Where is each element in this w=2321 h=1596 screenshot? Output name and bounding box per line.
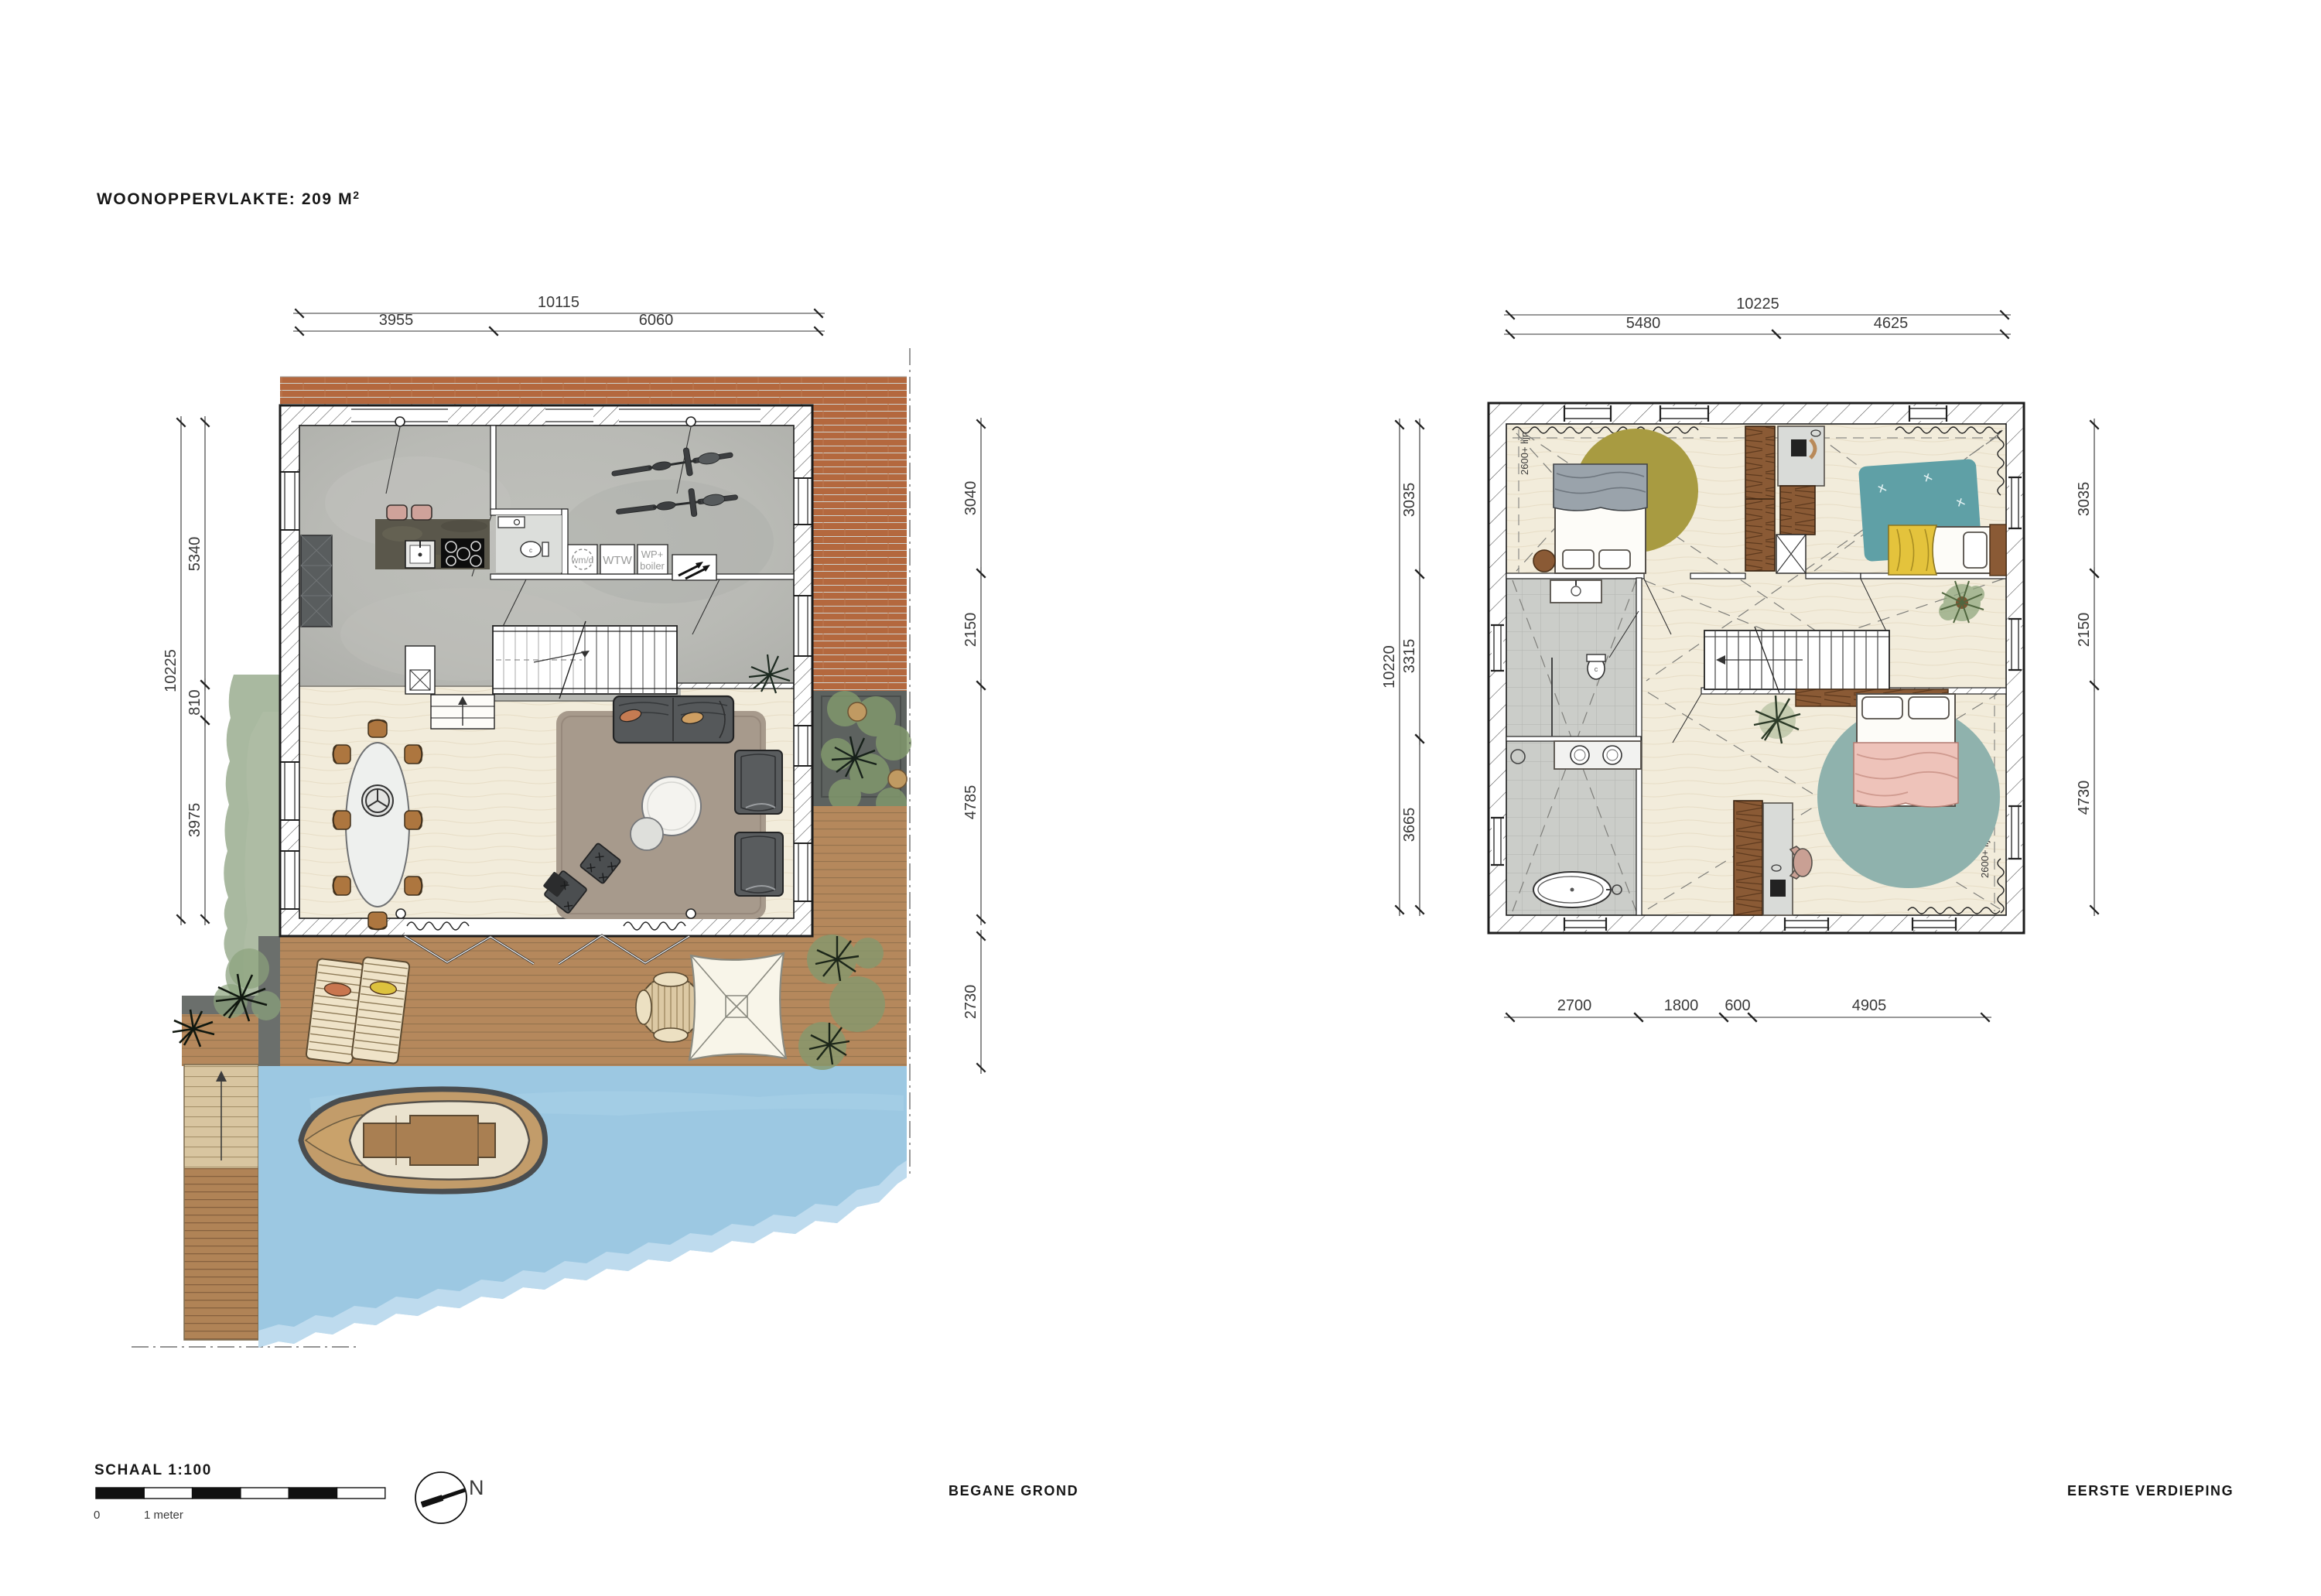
svg-text:3040: 3040 — [962, 481, 979, 516]
svg-text:2700: 2700 — [1557, 997, 1592, 1014]
svg-text:4905: 4905 — [1852, 997, 1887, 1014]
svg-text:WTW: WTW — [603, 554, 632, 567]
svg-text:5480: 5480 — [1626, 315, 1661, 332]
svg-text:4785: 4785 — [962, 785, 979, 820]
svg-text:4625: 4625 — [1874, 315, 1909, 332]
svg-text:6060: 6060 — [639, 312, 674, 329]
svg-text:10115: 10115 — [538, 294, 579, 311]
svg-text:3315: 3315 — [1401, 639, 1418, 674]
svg-text:10225: 10225 — [1736, 296, 1779, 313]
svg-text:SCHAAL 1:100: SCHAAL 1:100 — [94, 1462, 212, 1478]
svg-text:2730: 2730 — [962, 985, 979, 1020]
svg-text:2150: 2150 — [962, 613, 979, 648]
svg-text:N: N — [469, 1476, 484, 1499]
svg-text:0: 0 — [94, 1509, 100, 1522]
svg-text:10225: 10225 — [162, 649, 179, 692]
svg-text:WP+: WP+ — [641, 549, 664, 560]
svg-text:3035: 3035 — [2076, 482, 2093, 517]
svg-text:10220: 10220 — [1381, 645, 1398, 689]
svg-text:1 meter: 1 meter — [144, 1509, 183, 1522]
svg-text:WOONOPPERVLAKTE: 209 M2: WOONOPPERVLAKTE: 209 M2 — [97, 189, 361, 208]
svg-text:3035: 3035 — [1401, 483, 1418, 518]
svg-text:810: 810 — [186, 689, 203, 715]
svg-text:3665: 3665 — [1401, 808, 1418, 842]
svg-text:c: c — [529, 547, 532, 554]
svg-text:600: 600 — [1725, 997, 1750, 1014]
svg-text:3975: 3975 — [186, 803, 203, 838]
svg-text:1800: 1800 — [1664, 997, 1699, 1014]
svg-text:5340: 5340 — [186, 537, 203, 572]
svg-text:4730: 4730 — [2076, 781, 2093, 815]
svg-text:boiler: boiler — [640, 560, 665, 572]
svg-text:2150: 2150 — [2076, 613, 2093, 648]
svg-text:wm/d: wm/d — [571, 555, 594, 566]
svg-text:BEGANE GROND: BEGANE GROND — [949, 1483, 1078, 1499]
svg-text:c: c — [1595, 665, 1598, 673]
svg-text:3955: 3955 — [379, 312, 414, 329]
svg-text:EERSTE VERDIEPING: EERSTE VERDIEPING — [2067, 1483, 2234, 1499]
